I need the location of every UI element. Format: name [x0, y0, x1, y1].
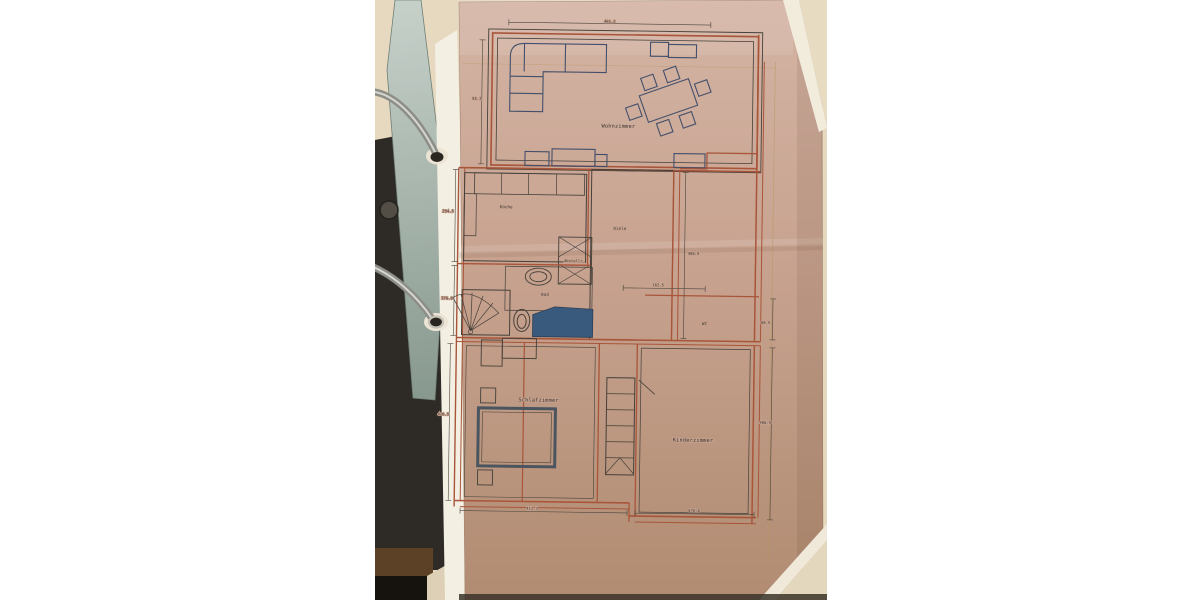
- photo-canvas: Wohnzimmer Küche: [0, 0, 1200, 600]
- bathtub: [532, 307, 592, 338]
- dimension-wc-width: 162.5: [652, 283, 664, 287]
- punched-hole-grommet: [429, 317, 443, 328]
- dimension-right-kinderzimmer: 406.5: [759, 421, 771, 425]
- dimension-left-schlafzimmer: 420.5: [438, 412, 450, 416]
- room-label-bad: Bad: [541, 292, 549, 297]
- paper-highlight: [459, 0, 793, 55]
- room-label-abstell: Abstellr.: [564, 259, 585, 263]
- dimension-left-upper: 95.1: [472, 97, 481, 101]
- photo-floor-plan: Wohnzimmer Küche: [375, 0, 827, 600]
- dimension-bottom-right: 876.8: [688, 509, 700, 513]
- room-label-wc: WC: [702, 321, 708, 326]
- dimension-bottom-left: 413.3: [526, 507, 538, 511]
- dimension-top: 461.2: [604, 20, 616, 24]
- floor-plan-photo-svg: Wohnzimmer Küche: [375, 0, 827, 600]
- dimension-wc-height: 86.5: [761, 321, 770, 325]
- binder-knob: [380, 201, 398, 219]
- punched-hole: [431, 152, 444, 162]
- room-label-schlafzimmer: Schlafzimmer: [518, 397, 559, 404]
- room-label-kinderzimmer: Kinderzimmer: [673, 438, 714, 445]
- room-label-diele: Diele: [613, 226, 627, 231]
- table-shadow-bottom: [459, 594, 827, 600]
- dimension-right-diele: 486.5: [688, 252, 700, 256]
- room-label-wohnzimmer: Wohnzimmer: [602, 124, 636, 130]
- dimension-left-kueche: 254.5: [442, 209, 454, 213]
- room-label-kueche: Küche: [500, 204, 514, 209]
- dimension-left-bad: 376.8: [441, 296, 453, 300]
- floor-plan-paper: [459, 0, 823, 600]
